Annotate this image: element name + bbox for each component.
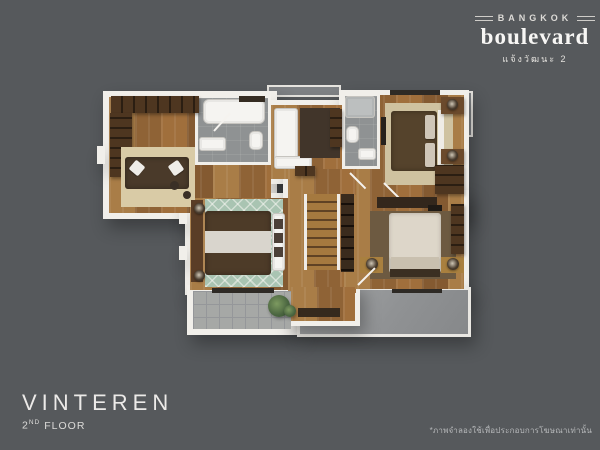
page-background: BANGKOK boulevard แจ้งวัฒนะ 2 VINTEREN 2… xyxy=(0,0,600,450)
bedroom3-lamp-2 xyxy=(194,270,205,281)
floor-number: 2 xyxy=(22,420,29,432)
brand-name: boulevard xyxy=(475,24,595,50)
ac-ledge-top xyxy=(267,85,341,97)
walkin-stool-2 xyxy=(183,191,191,199)
disclaimer-text: *ภาพจำลองใช้เพื่อประกอบการโฆษณาเท่านั้น xyxy=(430,424,592,437)
bedroom2-wardrobe xyxy=(435,165,464,194)
bedroom2-tv-panel xyxy=(381,117,386,145)
shower xyxy=(345,96,375,118)
bath1-vanity xyxy=(199,137,226,151)
bedroom3-bench-pillow-1 xyxy=(274,219,283,229)
bedroom3-bench-pillow-2 xyxy=(274,233,283,243)
master-window xyxy=(392,289,442,293)
bedroom3-bench-pillow-3 xyxy=(274,247,283,257)
sitting-sideboard xyxy=(330,109,342,147)
wall-tab-left xyxy=(97,146,105,164)
walkin-stool-1 xyxy=(170,181,179,190)
stair-shelf-column xyxy=(341,194,354,272)
bedroom3-window xyxy=(212,288,274,293)
floorplan xyxy=(0,0,600,450)
bath2-toilet xyxy=(346,126,359,143)
balcony-plant-small xyxy=(284,305,296,317)
master-lamp-2 xyxy=(447,258,459,270)
walkin-wardrobe-top xyxy=(111,96,199,113)
bedroom2-lamp-1 xyxy=(447,99,458,110)
master-bed-pillows xyxy=(391,257,439,269)
brand-top-row: BANGKOK xyxy=(475,13,595,23)
bedroom3-bed-runner xyxy=(205,231,271,253)
bedroom3-lamp-1 xyxy=(194,203,205,214)
bath1-toilet xyxy=(249,131,263,150)
bedroom2-pillow-2 xyxy=(425,143,435,167)
wall-tab-bedroom3-b xyxy=(179,246,187,260)
brand-logo: BANGKOK boulevard แจ้งวัฒนะ 2 xyxy=(475,13,595,66)
stair-landing-mat xyxy=(298,308,340,317)
master-headboard xyxy=(390,269,440,277)
hall-closet xyxy=(295,166,315,176)
bedroom2-window xyxy=(390,90,440,95)
staircase xyxy=(304,194,340,270)
bedroom2-lamp-2 xyxy=(447,150,458,161)
floor-ordinal-suffix: ND xyxy=(29,419,40,426)
floor-word: FLOOR xyxy=(44,420,85,432)
master-wardrobe xyxy=(451,204,464,254)
brand-rule-left xyxy=(475,16,493,21)
plan-title-block: VINTEREN 2NDFLOOR xyxy=(22,390,173,432)
bath2-vanity xyxy=(358,148,376,160)
bathtub xyxy=(203,99,265,124)
bedroom2-pillow-1 xyxy=(425,115,435,139)
plan-name: VINTEREN xyxy=(22,390,173,416)
bath1-counter xyxy=(239,96,265,102)
brand-subtitle: แจ้งวัฒนะ 2 xyxy=(475,52,595,66)
floor-label: 2NDFLOOR xyxy=(22,419,173,432)
brand-rule-right xyxy=(577,16,595,21)
brand-city: BANGKOK xyxy=(498,13,573,23)
